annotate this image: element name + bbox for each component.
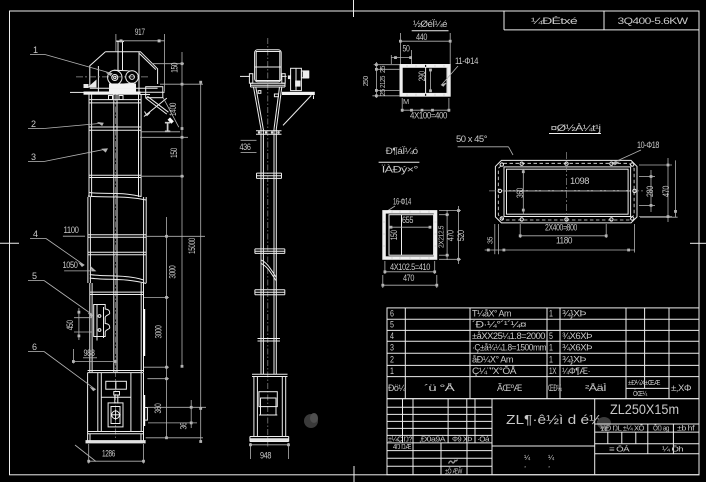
svg-text:655: 655 — [402, 215, 413, 225]
svg-text:2X400=800: 2X400=800 — [545, 223, 577, 233]
svg-text:ÃŒºÆ: ÃŒºÆ — [497, 383, 523, 393]
svg-text:11-Φ14: 11-Φ14 — [455, 56, 478, 66]
svg-text:150: 150 — [389, 230, 399, 240]
svg-text:åÐ¼X° Am: åÐ¼X° Am — [472, 355, 513, 365]
svg-text:4Ŋ ŊÆ: 4Ŋ ŊÆ — [393, 442, 412, 451]
svg-text:¼ÐÈtxé: ¼ÐÈtxé — [531, 16, 578, 26]
svg-text:·Ōá: ·Ōá — [477, 435, 490, 444]
svg-text:±Ð¼X±ŒÆ: ±Ð¼X±ŒÆ — [628, 378, 661, 387]
svg-text:6: 6 — [32, 342, 37, 352]
svg-text:1050: 1050 — [63, 260, 78, 270]
svg-text:≡ ŌÁ: ≡ ŌÁ — [609, 445, 630, 454]
svg-text:3: 3 — [390, 343, 394, 353]
svg-text:¾}XÞ: ¾}XÞ — [562, 355, 587, 365]
svg-text:988: 988 — [84, 348, 95, 358]
svg-text:1400: 1400 — [168, 103, 178, 116]
svg-text:25: 25 — [378, 66, 387, 73]
svg-text:¼Φ¶Æ·: ¼Φ¶Æ· — [562, 366, 590, 376]
svg-text:36: 36 — [178, 422, 188, 429]
svg-text:¾X6XÞ: ¾X6XÞ — [562, 343, 593, 353]
svg-text:±Ō ÆŴ: ±Ō ÆŴ — [445, 467, 462, 476]
svg-text:290: 290 — [417, 71, 427, 81]
svg-text:917: 917 — [135, 27, 145, 37]
svg-text:5: 5 — [32, 271, 37, 281]
svg-text:450: 450 — [65, 320, 75, 330]
svg-text:6: 6 — [390, 309, 394, 319]
svg-text:´Ð·¼°´¹´¼¤: ´Ð·¼°´¹´¼¤ — [472, 320, 527, 330]
svg-text:2: 2 — [31, 119, 36, 129]
svg-text:¾}XÞ: ¾}XÞ — [562, 309, 587, 319]
svg-text:50 x 45°: 50 x 45° — [456, 134, 487, 144]
svg-text:½ØéÏ¼é: ½ØéÏ¼é — [413, 19, 447, 29]
svg-text:ŌŊ ag: ŌŊ ag — [653, 424, 669, 433]
svg-text:15000: 15000 — [187, 238, 197, 254]
svg-text:5: 5 — [549, 331, 553, 341]
svg-text:3000: 3000 — [167, 265, 177, 278]
svg-text:1: 1 — [549, 309, 553, 319]
svg-text:¸: ¸ — [524, 459, 526, 468]
svg-text:ÖŒ¼: ÖŒ¼ — [633, 389, 648, 398]
svg-text:3Q400-5.6KW: 3Q400-5.6KW — [618, 16, 689, 26]
svg-text:150: 150 — [169, 62, 179, 72]
svg-text:Φ9 XÞ: Φ9 XÞ — [452, 435, 473, 444]
svg-text:1286: 1286 — [102, 449, 115, 459]
svg-text:470: 470 — [403, 273, 414, 283]
svg-text:1100: 1100 — [64, 225, 79, 235]
svg-text:±,XΦ: ±,XΦ — [671, 383, 691, 393]
svg-text:50: 50 — [403, 44, 410, 54]
svg-text:1: 1 — [549, 355, 553, 365]
svg-text:360: 360 — [153, 403, 163, 413]
svg-text:±b hf: ±b hf — [677, 424, 696, 433]
svg-text:3: 3 — [31, 152, 36, 162]
svg-text:1098: 1098 — [570, 176, 590, 186]
svg-text:16-Φ14: 16-Φ14 — [393, 197, 411, 207]
svg-text:ŒÐ¼: ŒÐ¼ — [548, 383, 562, 393]
svg-text:ZL¶·ê½ì d é¼: ZL¶·ê½ì d é¼ — [506, 412, 602, 427]
svg-text:4X100=400: 4X100=400 — [410, 111, 447, 121]
svg-text:470: 470 — [445, 230, 455, 241]
svg-text:¾X6XÞ: ¾X6XÞ — [562, 331, 593, 341]
svg-text:25: 25 — [378, 89, 387, 96]
svg-text:2: 2 — [390, 355, 394, 365]
svg-text:·Ç±å¾¼1.8=1500mm: ·Ç±å¾¼1.8=1500mm — [472, 343, 546, 353]
svg-text:470: 470 — [661, 186, 671, 197]
svg-text:1: 1 — [390, 366, 394, 376]
svg-text:520: 520 — [456, 230, 466, 241]
svg-text:T¼åX° Am: T¼åX° Am — [472, 309, 511, 319]
svg-text:±åXX25¼1.8=2000: ±åXX25¼1.8=2000 — [472, 331, 546, 341]
svg-text:250: 250 — [361, 76, 370, 86]
svg-text:10-Φ18: 10-Φ18 — [637, 140, 659, 150]
svg-text:3000: 3000 — [153, 325, 163, 338]
svg-text:¸: ¸ — [548, 459, 550, 468]
svg-text:5: 5 — [390, 320, 394, 330]
svg-text:Ð¶áÏ¼ó: Ð¶áÏ¼ó — [386, 146, 418, 156]
svg-text:2X212.5: 2X212.5 — [436, 226, 445, 248]
svg-text:Μ: Μ — [403, 97, 409, 106]
svg-text:35: 35 — [486, 237, 495, 244]
svg-text:Ç¼¨"X°ŌÅ: Ç¼¨"X°ŌÅ — [472, 366, 517, 376]
svg-text:¼ Ōh: ¼ Ōh — [662, 445, 683, 454]
svg-text:´ü °Å: ´ü °Å — [424, 383, 455, 393]
svg-text:436: 436 — [240, 142, 251, 152]
svg-text:1: 1 — [549, 343, 553, 353]
svg-text:440: 440 — [416, 32, 427, 42]
svg-text:ZL250X15m: ZL250X15m — [610, 402, 679, 417]
svg-text:¤Ø½À¼t¹j: ¤Ø½À¼t¹j — [551, 123, 602, 133]
svg-text:²ÅäÌ: ²ÅäÌ — [585, 383, 606, 393]
svg-text:360: 360 — [515, 188, 525, 198]
svg-text:150: 150 — [169, 148, 179, 158]
svg-text:¼Ð ŊL ±¼ XŌ: ¼Ð ŊL ±¼ XŌ — [600, 424, 645, 433]
svg-text:4: 4 — [33, 229, 38, 239]
svg-text:Ðö¼: Ðö¼ — [388, 383, 406, 393]
svg-text:ÏÀÐý×°: ÏÀÐý×° — [382, 165, 419, 175]
svg-text:280: 280 — [645, 186, 655, 197]
svg-text:,Đ0a9Á: ,Đ0a9Á — [419, 435, 446, 444]
svg-text:2125: 2125 — [378, 76, 387, 88]
svg-text:4X102.5=410: 4X102.5=410 — [390, 262, 430, 272]
svg-text:948: 948 — [260, 451, 271, 461]
svg-text:1: 1 — [33, 45, 38, 55]
svg-text:4: 4 — [390, 331, 394, 341]
svg-text:1X: 1X — [549, 366, 557, 376]
svg-text:1180: 1180 — [556, 236, 573, 246]
